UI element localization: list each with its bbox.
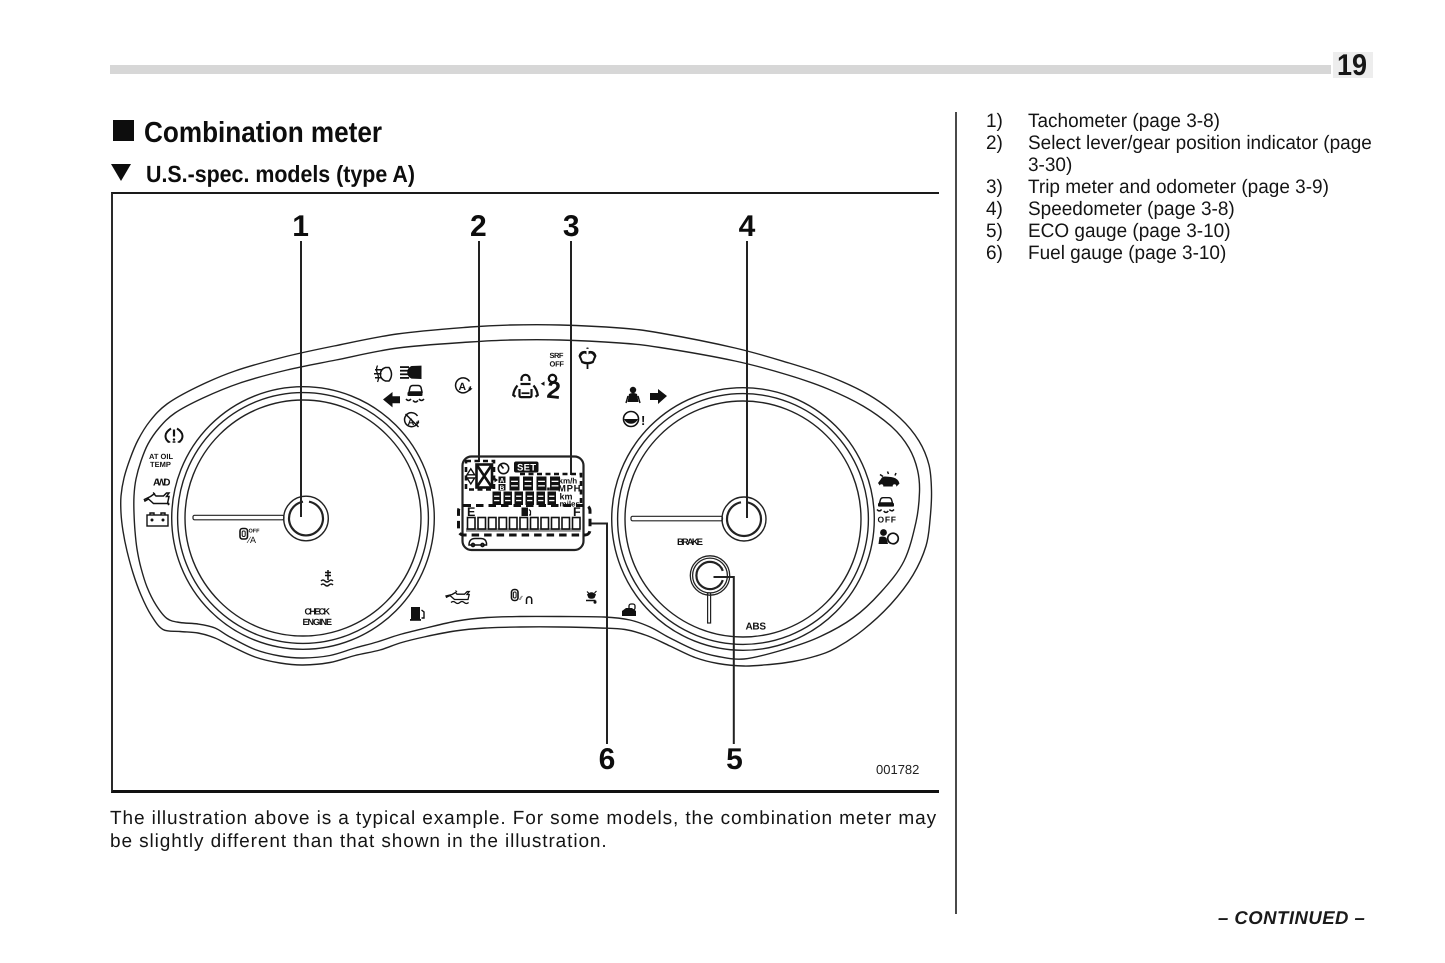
svg-text:F: F [573,505,581,519]
svg-text:TEMP: TEMP [150,460,171,469]
svg-text:6: 6 [599,743,616,776]
svg-text:CHECK: CHECK [305,607,331,617]
svg-text:A: A [459,381,467,393]
svg-text:A: A [500,477,505,484]
svg-text:SET: SET [517,463,536,474]
svg-text:AWD: AWD [153,478,171,489]
svg-text:2: 2 [546,377,562,405]
svg-text:OFF: OFF [249,529,261,535]
svg-text:!: ! [641,413,645,428]
svg-text:BRAKE: BRAKE [677,537,703,548]
svg-text:∕A: ∕A [247,535,257,545]
svg-text:4: 4 [739,210,756,243]
svg-text:OFF: OFF [550,360,565,369]
svg-text:ABS: ABS [746,622,767,633]
svg-text:B: B [500,485,505,492]
svg-text:1: 1 [292,210,309,243]
svg-text:E: E [467,505,475,519]
svg-text:3: 3 [563,210,580,243]
svg-text:5: 5 [726,743,743,776]
svg-text:2: 2 [470,210,487,243]
svg-text:OFF: OFF [878,515,897,525]
svg-text:ENGINE: ENGINE [303,617,333,627]
